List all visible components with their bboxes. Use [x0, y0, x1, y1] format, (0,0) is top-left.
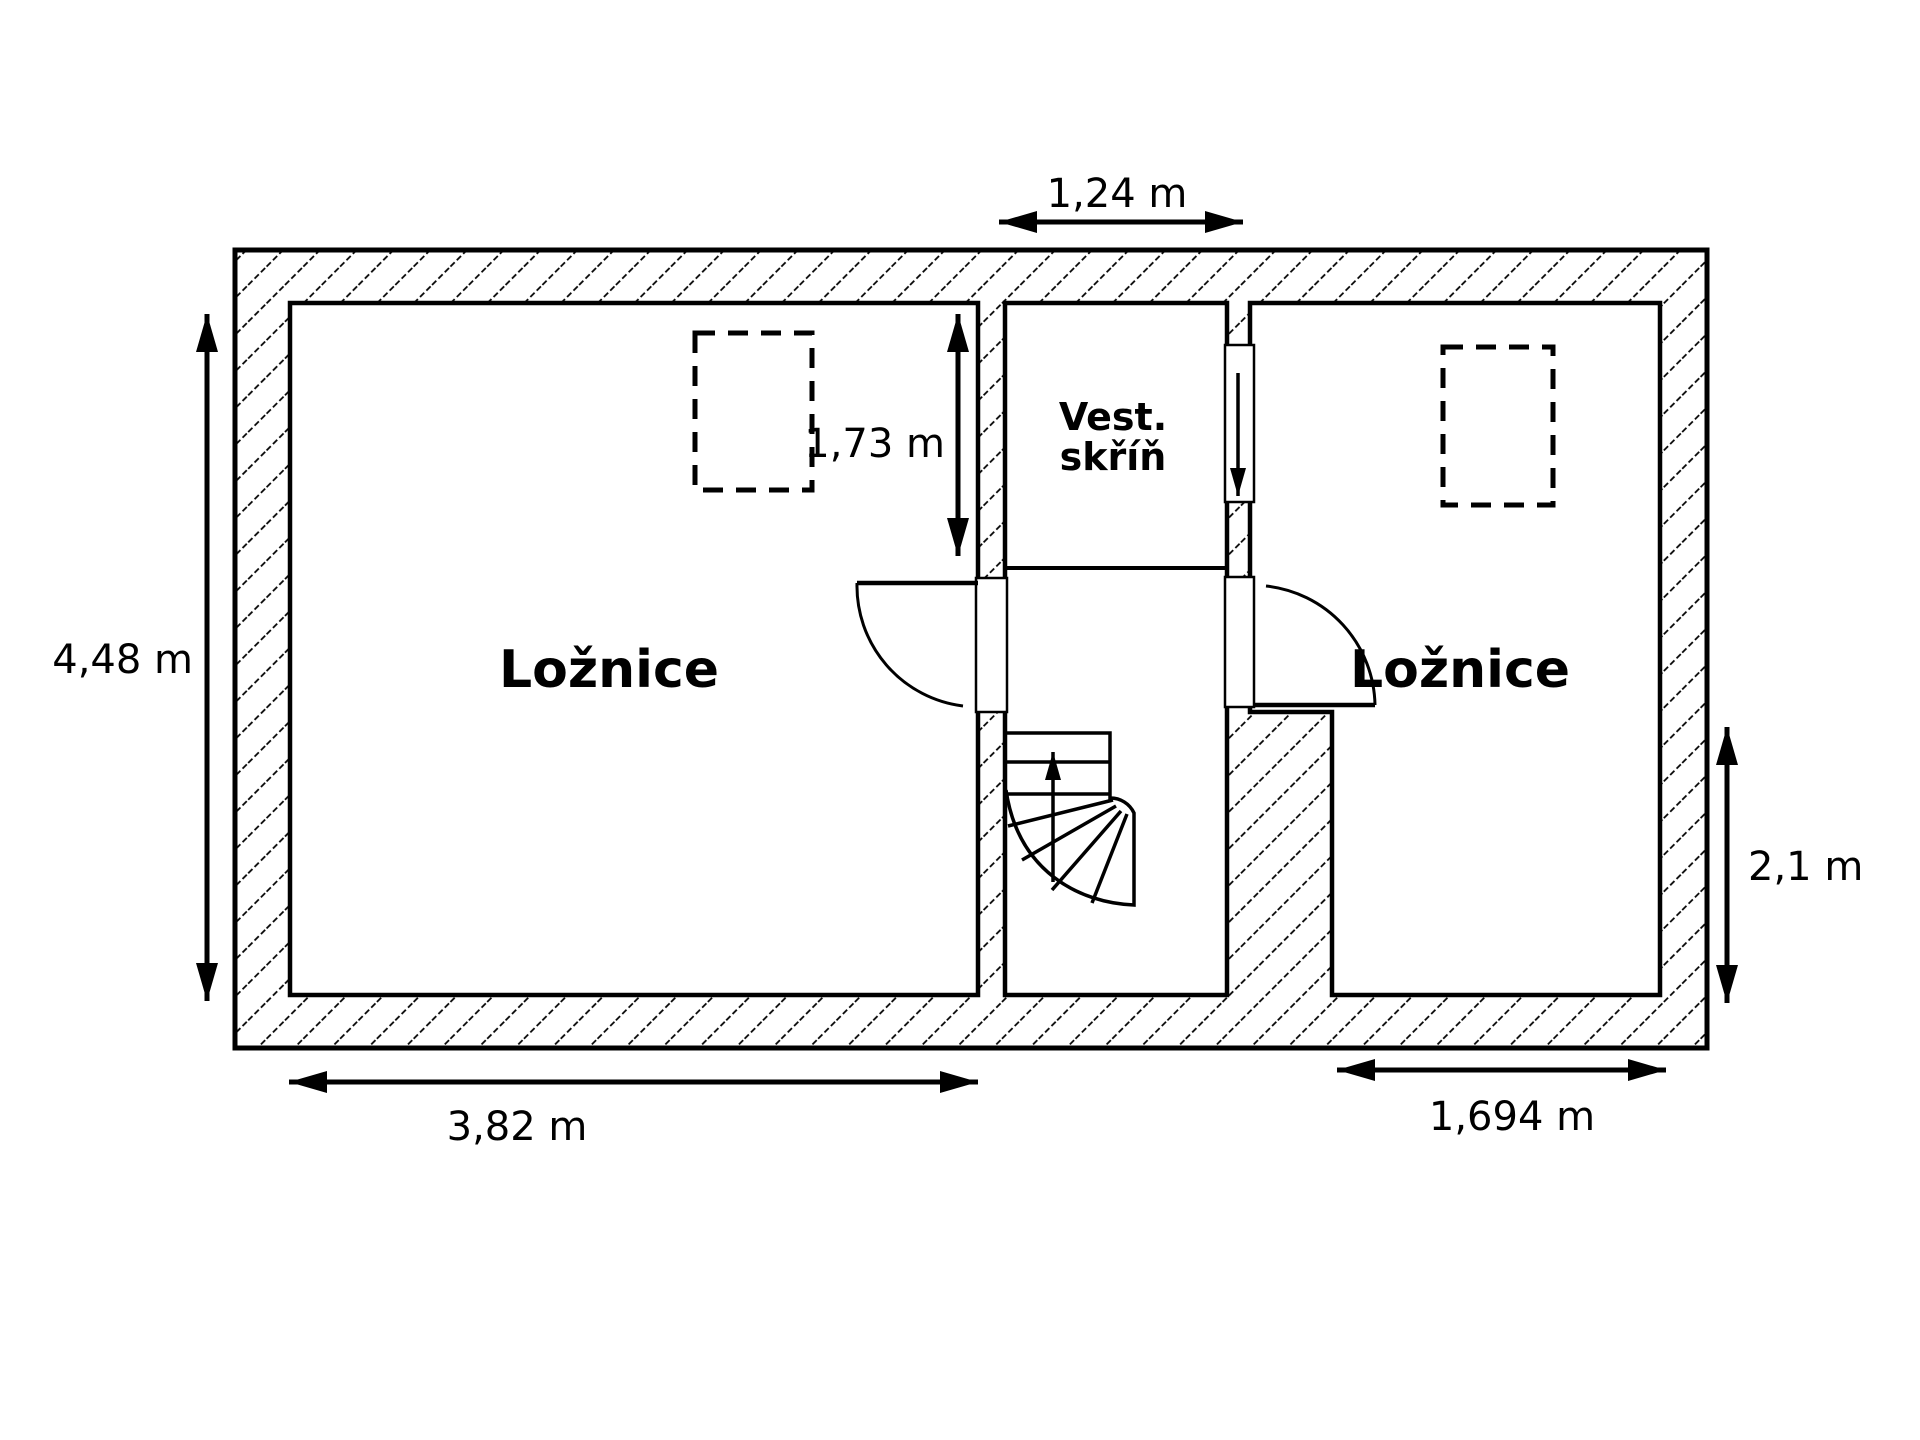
dimension-label: 1,24 m	[1047, 171, 1188, 217]
dimension-label: 4,48 m	[52, 637, 193, 683]
dimension-label: 2,1 m	[1748, 844, 1863, 890]
dimension-label: 1,73 m	[804, 421, 945, 467]
floor-plan-canvas: 1,24 m 1,73 m 4,48 m 3,82 m 1,694 m 2,1 …	[0, 0, 1920, 1440]
dimension-label: 3,82 m	[447, 1104, 588, 1150]
closet-label-line2: skříň	[1060, 435, 1167, 479]
bedroom-left-label: Ložnice	[499, 640, 719, 700]
dimension-label: 1,694 m	[1429, 1094, 1595, 1140]
bedroom-right-label: Ložnice	[1350, 640, 1570, 700]
closet-label-line1: Vest.	[1059, 395, 1167, 439]
left-door-opening	[976, 578, 1007, 712]
right-door-opening	[1225, 577, 1254, 707]
